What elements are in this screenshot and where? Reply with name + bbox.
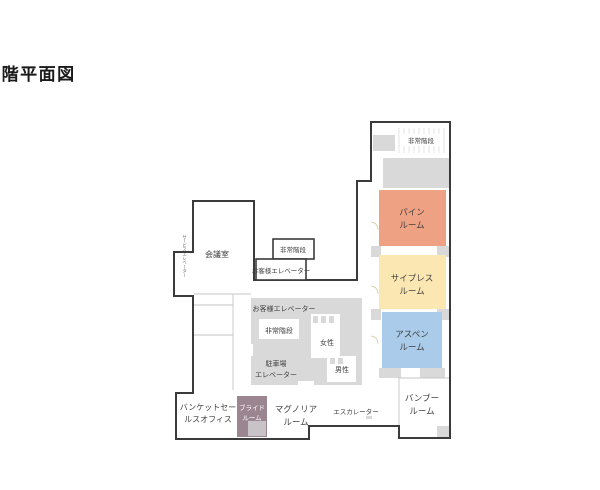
emergency-stairs-top-label: 非常階段 [408, 136, 435, 145]
parking-elevator-label-line1: 駐車場 [266, 359, 287, 368]
magnolia-room-label-line1: マグノリア [275, 404, 317, 414]
service-block-upper [383, 158, 450, 188]
meeting-room-label: 会議室 [205, 249, 229, 259]
mens-label: 男性 [335, 365, 349, 374]
bride-room-inner-block [248, 421, 266, 436]
bamboo-room-label-line2: ルーム [409, 406, 434, 416]
aspen-room [382, 312, 442, 368]
service-elevator-label: サービスエレベーター [183, 234, 188, 277]
pine-room-label-line2: ルーム [399, 220, 424, 230]
floor-plan-canvas: 5 階平面図 非常階段 パイン ルーム サイプレス ルーム アスペン ルーム [0, 0, 600, 490]
womens-stall-marks [313, 316, 334, 323]
bamboo-door-block [437, 426, 449, 437]
floor-plan-page: 5 階平面図 非常階段 パイン ルーム サイプレス ルーム アスペン ルーム [0, 0, 600, 490]
door-swing-arcs [371, 222, 378, 344]
banquet-office-label-line2: ルスオフィス [184, 415, 232, 424]
aspen-room-label-line2: ルーム [399, 342, 424, 352]
emergency-stairs-mid-label: 非常階段 [280, 245, 307, 254]
bamboo-room-label-line1: バンブー [405, 393, 439, 403]
left-partition-lines [194, 294, 251, 390]
escalator-label: エスカレーター [333, 407, 379, 416]
guest-elevator-lower-label: お客様エレベーター [253, 304, 316, 313]
cypress-room-label-line2: ルーム [399, 286, 424, 296]
womens-label: 女性 [320, 338, 334, 347]
door-blocks-row3 [379, 368, 445, 378]
page-title: 5 階平面図 [0, 65, 76, 84]
pine-room-label-line1: パイン [399, 207, 425, 217]
parking-elevator-label-line2: エレベーター [255, 370, 297, 379]
aspen-room-label-line1: アスペン [395, 329, 428, 339]
cypress-room-label-line1: サイプレス [391, 273, 434, 283]
guest-elevator-upper-label: お客様エレベーター [252, 266, 311, 275]
bride-room-label-line1: ブライド [239, 403, 265, 412]
emergency-stairs-center-label: 非常階段 [265, 326, 293, 335]
banquet-office-label-line1: バンケットセー [180, 403, 236, 412]
service-block-top [373, 135, 395, 151]
bride-room-label-line2: ルーム [242, 414, 262, 422]
escalator-mark [366, 416, 372, 419]
magnolia-room-label-line2: ルーム [283, 417, 308, 427]
pine-room [379, 190, 446, 246]
